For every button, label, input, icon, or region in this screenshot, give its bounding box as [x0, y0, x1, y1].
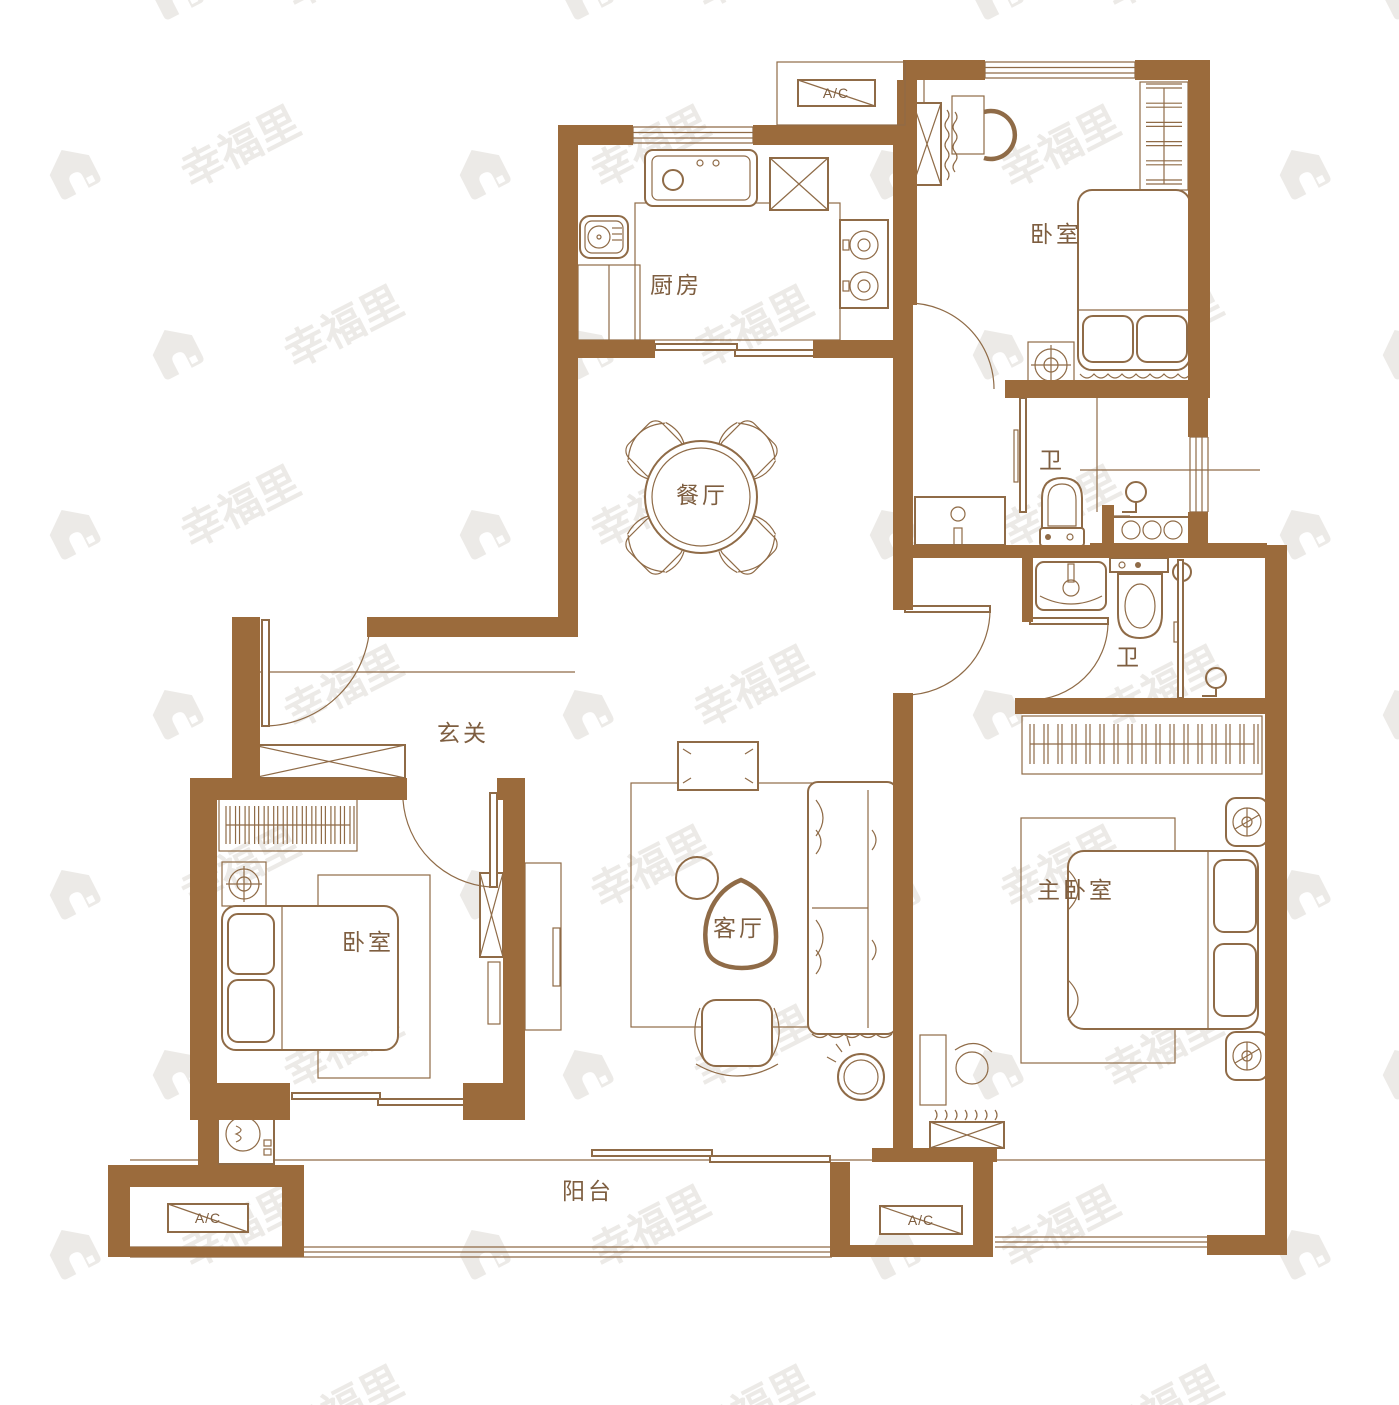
label-living: 客厅: [713, 915, 765, 941]
label-bedroom-tr: 卧室: [1030, 221, 1082, 247]
label-bedroom-left: 卧室: [342, 929, 394, 955]
floor-cushion: [678, 742, 758, 790]
ac-top-label: A/C: [823, 85, 849, 101]
entry-furniture: [253, 745, 405, 778]
house-icon: [452, 1220, 512, 1281]
watermark-text: 幸福里: [174, 98, 308, 197]
bed-top-right: [1078, 190, 1190, 378]
tv-console: [525, 863, 561, 1030]
radiator-icon: [930, 1110, 1004, 1148]
ac-bottom-middle-box: A/C: [880, 1206, 962, 1234]
master-suite-door: [905, 606, 990, 695]
house-icon: [145, 680, 205, 741]
wardrobe-top-right: [1140, 82, 1188, 190]
label-kitchen: 厨房: [650, 272, 702, 298]
sofa: [808, 782, 897, 1038]
watermark-text: 幸福里: [277, 0, 411, 17]
house-icon: [42, 1220, 102, 1281]
ac-bottom-left-label: A/C: [195, 1210, 221, 1226]
watermark-text: 幸福里: [174, 458, 308, 557]
ac-bottom-left-box: A/C: [168, 1204, 248, 1232]
bed-left: [222, 906, 398, 1050]
watermark-text: 幸福里: [687, 0, 821, 17]
floor-lamp-icon: [827, 1037, 884, 1100]
watermark-text: 幸福里: [1097, 1358, 1231, 1405]
label-entry: 玄关: [437, 720, 489, 746]
house-icon: [965, 0, 1025, 21]
house-icon: [965, 320, 1025, 381]
label-bath-1: 卫: [1039, 447, 1065, 473]
watermark-text: 幸福里: [687, 278, 821, 377]
bath-2-sink: [1036, 562, 1106, 610]
ac-bottom-middle-label: A/C: [908, 1212, 934, 1228]
house-icon: [1375, 320, 1399, 381]
ac-top-box: A/C: [798, 80, 875, 106]
watermark-text: 幸福里: [994, 1178, 1128, 1277]
bedroom-left-sliding-window: [292, 1093, 466, 1105]
floor-plan-page: 幸福里幸福里幸福里幸福里幸福里幸福里幸福里幸福里幸福里幸福里幸福里幸福里幸福里幸…: [0, 0, 1399, 1405]
label-dining: 餐厅: [676, 482, 728, 508]
shower-glass-2: [1178, 560, 1183, 698]
nightstand-lamp-bottom: [1226, 1032, 1268, 1080]
kitchen-sliding-door: [655, 344, 817, 356]
vanity-3-holes: [1112, 517, 1190, 544]
living-room-furniture: [525, 742, 897, 1162]
house-icon: [145, 320, 205, 381]
house-icon: [1375, 1400, 1399, 1405]
bedroom-top-right-window: [985, 62, 1135, 78]
label-master: 主卧室: [1037, 877, 1115, 903]
watermark-text: 幸福里: [1097, 0, 1231, 17]
shoe-cabinet-icon: [253, 745, 405, 778]
watermark-text: 幸福里: [687, 1358, 821, 1405]
right-side-window: [1190, 437, 1208, 512]
label-bath-2: 卫: [1116, 644, 1142, 670]
desk: [952, 96, 984, 154]
master-bedroom-furniture: [920, 716, 1268, 1148]
toilet-1-icon: [1040, 478, 1084, 546]
house-icon: [965, 1400, 1025, 1405]
label-balcony: 阳台: [562, 1178, 614, 1204]
house-icon: [1375, 1040, 1399, 1101]
watermark-text: 幸福里: [687, 638, 821, 737]
house-icon: [555, 1400, 615, 1405]
watermark-text: 幸福里: [277, 638, 411, 737]
house-icon: [555, 1040, 615, 1101]
wardrobe-master: [1022, 716, 1262, 774]
house-icon: [145, 1400, 205, 1405]
bathroom-2-door: [1030, 618, 1108, 700]
house-icon: [555, 0, 615, 21]
house-icon: [965, 1040, 1025, 1101]
watermark-text: 幸福里: [584, 818, 718, 917]
house-icon: [42, 860, 102, 921]
house-icon: [42, 140, 102, 201]
wall-tv: [488, 962, 500, 1024]
house-icon: [452, 140, 512, 201]
rug: [631, 783, 817, 1027]
fridge-icon: [770, 158, 828, 210]
house-icon: [1375, 0, 1399, 21]
watermark-text: 幸福里: [277, 278, 411, 377]
house-icon: [145, 0, 205, 21]
house-icon: [1272, 140, 1332, 201]
stove-icon: [840, 220, 888, 308]
bathroom-1-fixtures: [915, 398, 1190, 554]
house-icon: [555, 680, 615, 741]
house-icon: [452, 500, 512, 561]
nightstand-lamp-top: [1226, 798, 1268, 846]
house-icon: [1375, 680, 1399, 741]
radiator-icon: [913, 68, 957, 185]
glass-partition: [1020, 398, 1026, 512]
kitchen-basin-icon: [580, 216, 628, 258]
house-icon: [42, 500, 102, 561]
floor-plan: 幸福里幸福里幸福里幸福里幸福里幸福里幸福里幸福里幸福里幸福里幸福里幸福里幸福里幸…: [0, 0, 1399, 1405]
watermark-text: 幸福里: [277, 1358, 411, 1405]
